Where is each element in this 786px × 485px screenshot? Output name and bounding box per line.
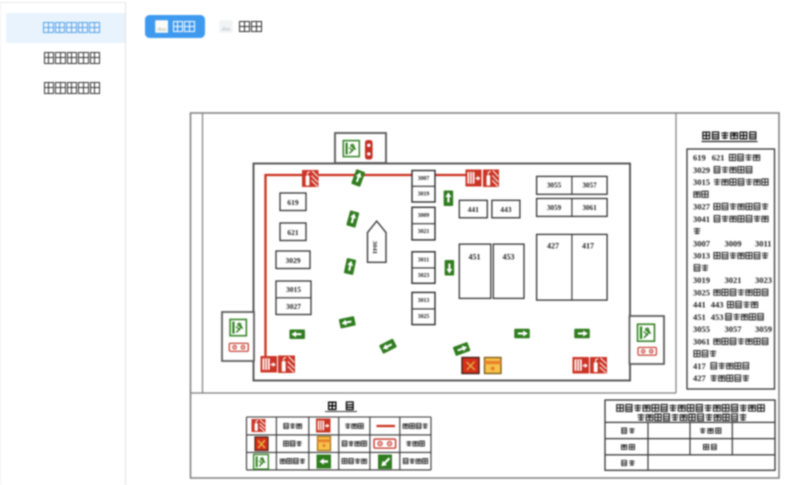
- svg-text:3041: 3041: [371, 241, 378, 254]
- svg-text:3013: 3013: [418, 298, 430, 304]
- svg-text:619: 619: [693, 153, 706, 163]
- svg-text:3015: 3015: [693, 177, 710, 187]
- svg-text:427: 427: [693, 373, 707, 383]
- svg-text:417: 417: [582, 242, 594, 251]
- svg-text:3029: 3029: [693, 165, 710, 175]
- svg-text:451: 451: [469, 253, 481, 262]
- svg-text:3023: 3023: [418, 273, 430, 279]
- svg-text:621: 621: [712, 153, 725, 163]
- svg-text:3061: 3061: [582, 204, 597, 212]
- svg-text:3057: 3057: [725, 324, 743, 334]
- svg-text:453: 453: [711, 312, 724, 322]
- svg-text:3009: 3009: [725, 238, 742, 248]
- svg-text:427: 427: [547, 242, 559, 251]
- svg-text:619: 619: [287, 198, 299, 207]
- svg-text:3021: 3021: [725, 275, 742, 285]
- svg-text:417: 417: [693, 361, 707, 371]
- svg-text:3007: 3007: [418, 176, 430, 182]
- svg-text:3025: 3025: [693, 287, 710, 297]
- svg-text:3019: 3019: [693, 275, 710, 285]
- svg-text:441: 441: [468, 205, 480, 214]
- svg-text:3025: 3025: [418, 314, 430, 320]
- svg-text:441: 441: [693, 300, 706, 310]
- svg-text:451: 451: [693, 312, 706, 322]
- svg-text:3059: 3059: [755, 324, 772, 334]
- svg-text:3013: 3013: [693, 251, 710, 261]
- svg-text:3021: 3021: [418, 229, 430, 235]
- svg-text:621: 621: [287, 228, 299, 237]
- svg-text:443: 443: [711, 300, 724, 310]
- svg-text:3041: 3041: [693, 214, 710, 224]
- svg-text:3029: 3029: [286, 256, 301, 265]
- svg-text:443: 443: [500, 205, 512, 214]
- svg-text:3027: 3027: [286, 302, 301, 311]
- svg-text:3061: 3061: [693, 336, 710, 346]
- svg-text:3011: 3011: [418, 257, 429, 263]
- svg-text:3019: 3019: [418, 192, 430, 198]
- svg-text:3027: 3027: [693, 202, 711, 212]
- svg-text:3011: 3011: [755, 238, 772, 248]
- svg-text:3055: 3055: [547, 182, 562, 190]
- svg-text:453: 453: [503, 253, 515, 262]
- svg-text:3007: 3007: [693, 238, 711, 248]
- svg-text:3059: 3059: [547, 204, 562, 212]
- svg-text:3015: 3015: [286, 285, 301, 294]
- svg-text:3057: 3057: [582, 182, 597, 190]
- svg-text:3009: 3009: [418, 213, 430, 219]
- svg-text:3023: 3023: [755, 275, 772, 285]
- svg-text:3055: 3055: [693, 324, 710, 334]
